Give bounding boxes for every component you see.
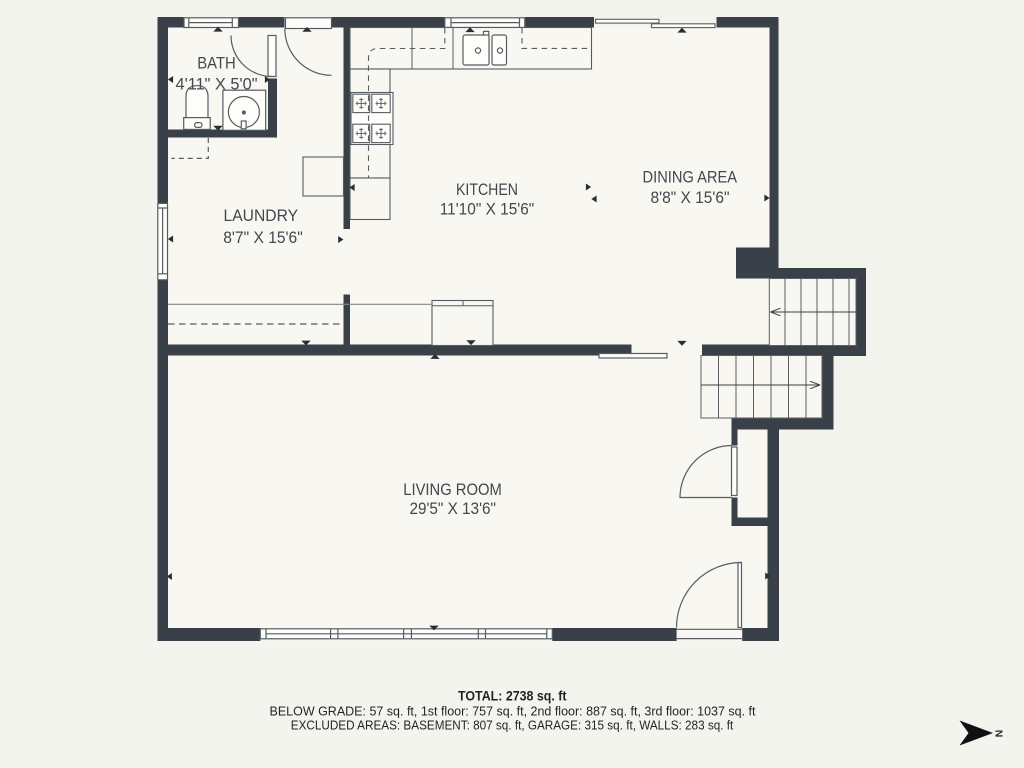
- svg-text:TOTAL: 2738 sq. ft: TOTAL: 2738 sq. ft: [458, 688, 567, 704]
- svg-text:BATH: BATH: [197, 55, 236, 73]
- svg-text:DINING AREA: DINING AREA: [643, 168, 738, 186]
- svg-text:29'5" X 13'6": 29'5" X 13'6": [409, 500, 496, 518]
- svg-text:EXCLUDED AREAS: BASEMENT: 807: EXCLUDED AREAS: BASEMENT: 807 sq. ft, GA…: [291, 718, 734, 733]
- svg-text:LIVING ROOM: LIVING ROOM: [403, 481, 502, 499]
- svg-text:11'10" X 15'6": 11'10" X 15'6": [440, 201, 535, 219]
- svg-text:4'11" X 5'0": 4'11" X 5'0": [176, 76, 258, 94]
- svg-text:KITCHEN: KITCHEN: [456, 181, 518, 199]
- svg-text:N: N: [993, 730, 1005, 738]
- svg-text:LAUNDRY: LAUNDRY: [224, 207, 299, 225]
- svg-text:BELOW GRADE: 57 sq. ft, 1st fl: BELOW GRADE: 57 sq. ft, 1st floor: 757 s…: [270, 704, 756, 719]
- svg-text:8'7" X 15'6": 8'7" X 15'6": [223, 229, 303, 247]
- svg-text:8'8" X 15'6": 8'8" X 15'6": [651, 189, 730, 207]
